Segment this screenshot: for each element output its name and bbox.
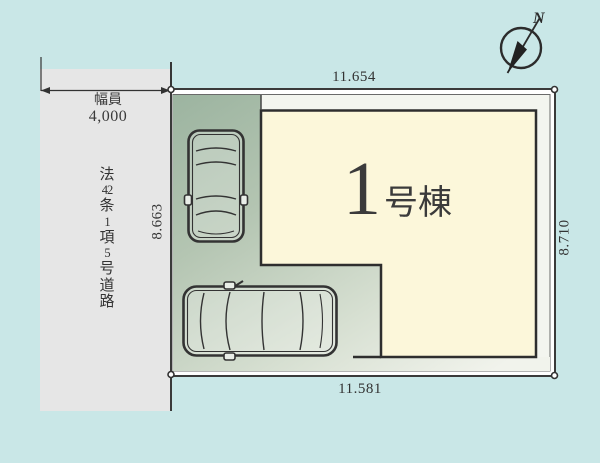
dimension-left: 8.663 <box>151 182 166 262</box>
site-plan-page: { "compass": { "north_label": "N" }, "ro… <box>0 0 600 463</box>
building-suffix: 号棟 <box>384 185 452 222</box>
road-width-label: 幅員 4,000 <box>58 94 158 125</box>
car-top-icon <box>185 131 248 242</box>
dimension-right: 8.710 <box>558 198 573 278</box>
dimension-bottom: 11.581 <box>300 382 420 397</box>
compass-north-label: N <box>533 10 545 28</box>
road-width-caption: 幅員 <box>58 94 158 109</box>
building-label: 1号棟 <box>343 158 452 224</box>
road-width-value: 4,000 <box>58 109 158 126</box>
building-number: 1 <box>343 147 381 231</box>
road-name-vertical: 法 42 条 1 項 5 号 道 路 <box>93 167 121 310</box>
car-bottom-icon <box>184 281 337 360</box>
dimension-top: 11.654 <box>294 70 414 85</box>
